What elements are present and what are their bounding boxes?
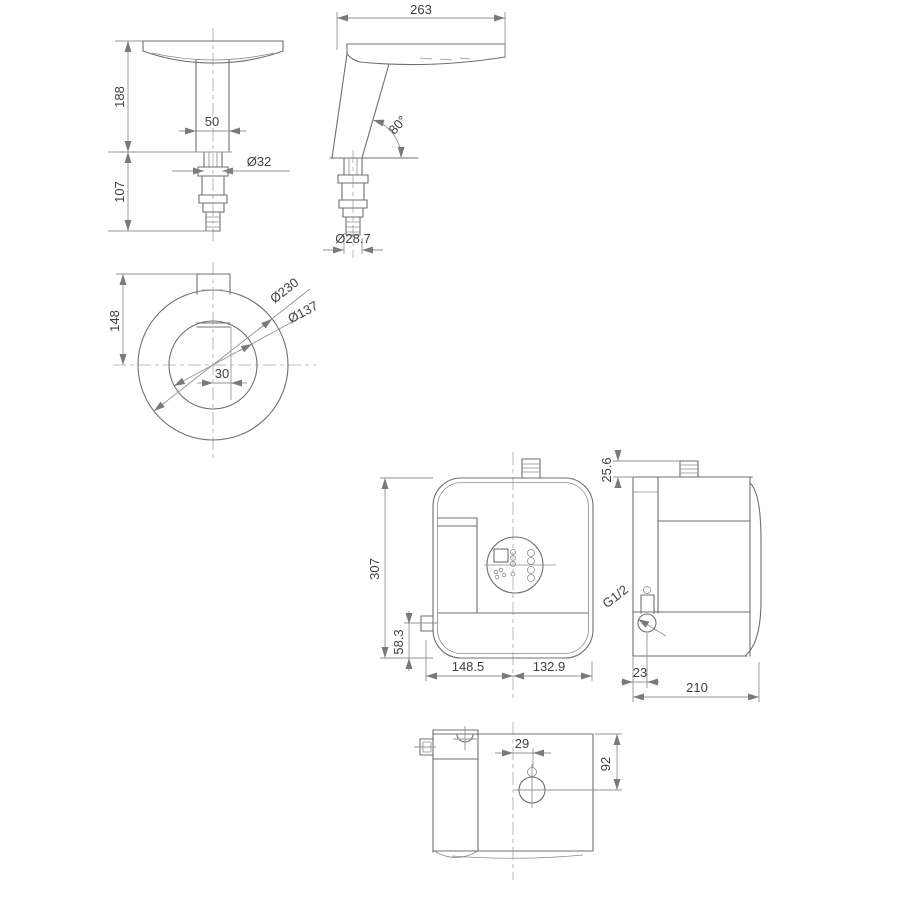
spout-body: [332, 54, 389, 158]
dim-label-148: 148: [107, 310, 122, 332]
dim-label-58-3: 58.3: [391, 629, 406, 654]
dim-label-210: 210: [686, 680, 708, 695]
dim-label-80deg: 80°: [386, 113, 410, 138]
dim-label-92: 92: [598, 757, 613, 771]
side-panel: [434, 759, 478, 851]
thread-label-g12: G1/2: [600, 582, 631, 611]
heater-side-view: G1/2 25.6 23 210: [599, 450, 761, 702]
top-stub: [522, 459, 540, 478]
inlet-fitting: [641, 595, 654, 613]
dim-label-dia137: Ø137: [285, 298, 320, 326]
back-bulge: [746, 483, 761, 655]
dim-label-107: 107: [112, 181, 127, 203]
dim-label-29: 29: [515, 736, 529, 751]
spout-stem: [196, 60, 229, 152]
spray-marks: [420, 58, 470, 60]
heater-bottom-view: 29 92: [414, 722, 622, 880]
dim-label-132-9: 132.9: [533, 659, 566, 674]
faucet-front-view: 188 107 50 Ø32: [108, 28, 290, 243]
heater-front-view: 307 58.3 148.5 132.9: [367, 452, 593, 700]
faucet-side-view: 80° 263 Ø28.7: [323, 2, 505, 258]
faucet-top-view: 148 30 Ø230 Ø137: [107, 262, 320, 458]
dim-label-dia32: Ø32: [247, 154, 272, 169]
dim-label-dia28-7: Ø28.7: [335, 231, 370, 246]
dim-label-50: 50: [205, 114, 219, 129]
side-inlet-stub: [421, 616, 433, 631]
dim-label-30: 30: [215, 366, 229, 381]
dim-label-23: 23: [633, 665, 647, 680]
dim-label-148-5: 148.5: [452, 659, 485, 674]
dim-label-307: 307: [367, 558, 382, 580]
control-buttons: [494, 550, 534, 582]
display-window: [494, 549, 508, 562]
dim-label-263: 263: [410, 2, 432, 17]
spout-head-outline: [347, 44, 505, 65]
dim-label-dia230: Ø230: [267, 275, 301, 306]
battery-panel: [438, 518, 477, 613]
drawing-page: 188 107 50 Ø32 80° 263: [0, 0, 900, 899]
dim-label-188: 188: [112, 86, 127, 108]
dim-label-25-6: 25.6: [599, 457, 614, 482]
technical-drawing-canvas: 188 107 50 Ø32 80° 263: [0, 0, 900, 899]
inlet-port: [638, 614, 656, 632]
